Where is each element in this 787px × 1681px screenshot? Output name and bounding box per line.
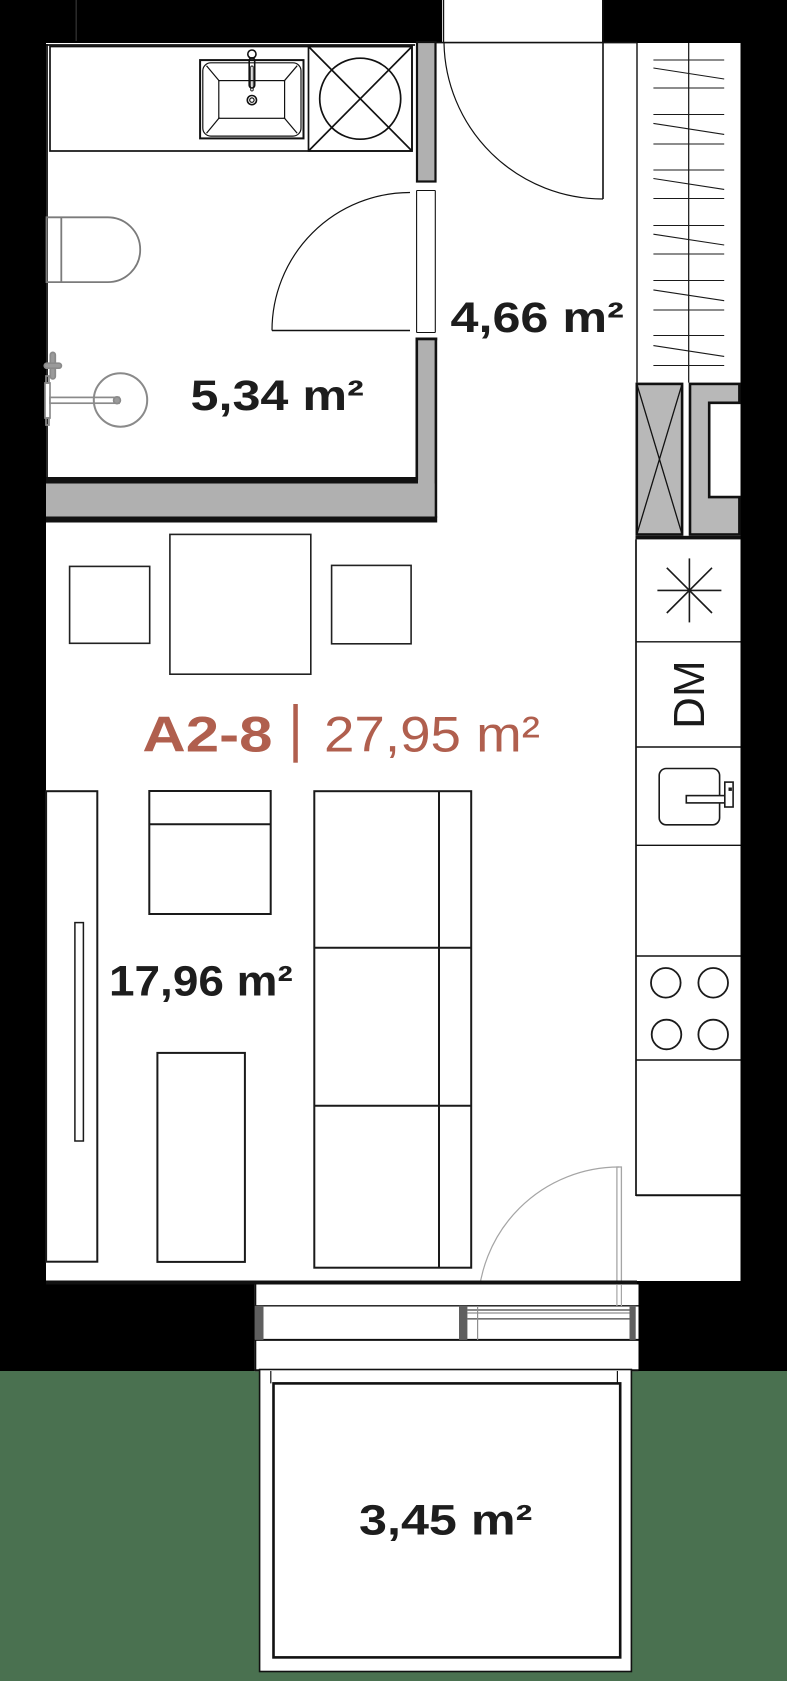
svg-text:5,34 m²: 5,34 m²	[191, 371, 364, 419]
svg-text:17,96 m²: 17,96 m²	[109, 958, 293, 1005]
svg-text:3,45 m²: 3,45 m²	[359, 1496, 532, 1544]
svg-text:DM: DM	[665, 660, 714, 728]
svg-text:A2-8: A2-8	[142, 706, 272, 762]
svg-text:4,66 m²: 4,66 m²	[451, 293, 624, 341]
svg-text:27,95 m²: 27,95 m²	[324, 708, 540, 763]
